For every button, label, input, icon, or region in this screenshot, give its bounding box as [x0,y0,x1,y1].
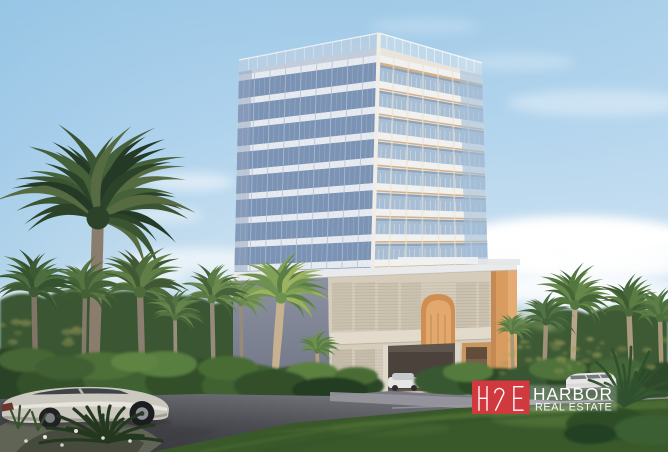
svg-text:REAL ESTATE: REAL ESTATE [535,402,612,414]
